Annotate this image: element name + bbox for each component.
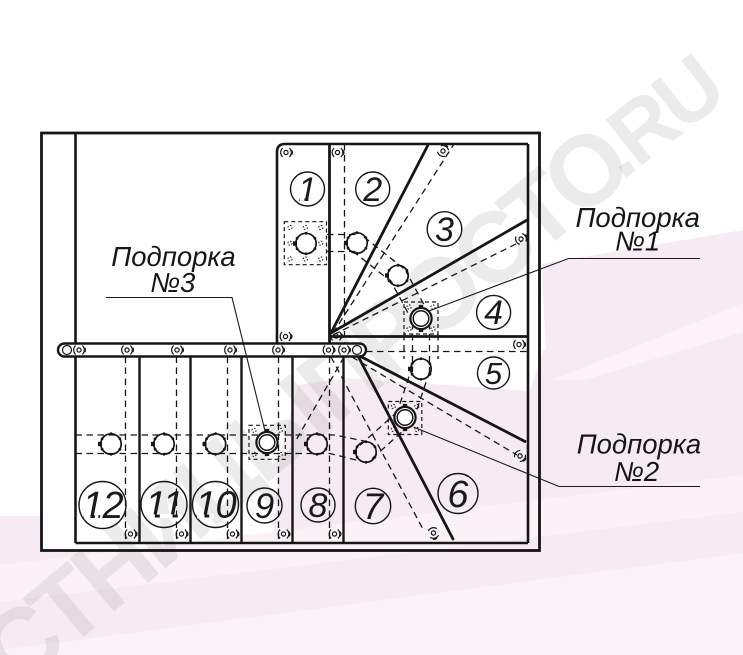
svg-text:Подпорка: Подпорка xyxy=(577,429,701,460)
svg-text:№1: №1 xyxy=(615,226,660,257)
svg-text:3: 3 xyxy=(435,211,454,249)
svg-text:8: 8 xyxy=(309,487,328,525)
svg-text:1: 1 xyxy=(298,171,317,209)
svg-text:5: 5 xyxy=(485,356,503,391)
svg-text:12: 12 xyxy=(82,485,123,527)
svg-text:10: 10 xyxy=(195,485,236,527)
svg-text:4: 4 xyxy=(484,294,503,332)
svg-text:2: 2 xyxy=(362,171,382,209)
svg-text:9: 9 xyxy=(255,487,274,526)
svg-text:6: 6 xyxy=(447,474,469,516)
svg-text:7: 7 xyxy=(363,486,385,527)
svg-text:11: 11 xyxy=(145,485,182,527)
svg-text:№2: №2 xyxy=(614,456,659,487)
svg-text:№3: №3 xyxy=(150,267,196,298)
